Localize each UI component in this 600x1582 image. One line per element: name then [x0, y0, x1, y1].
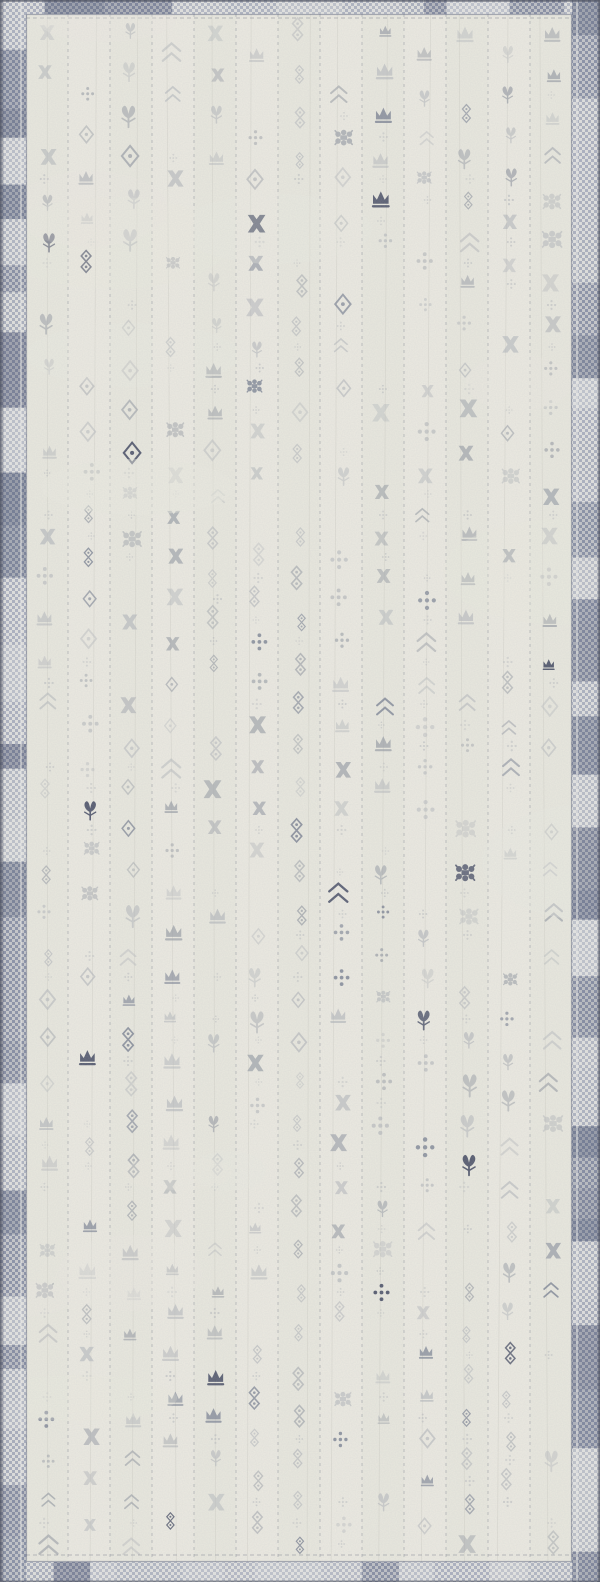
rug-svg [0, 0, 600, 1582]
rug-runner-photo [0, 0, 600, 1582]
texture-grain [0, 0, 600, 1582]
